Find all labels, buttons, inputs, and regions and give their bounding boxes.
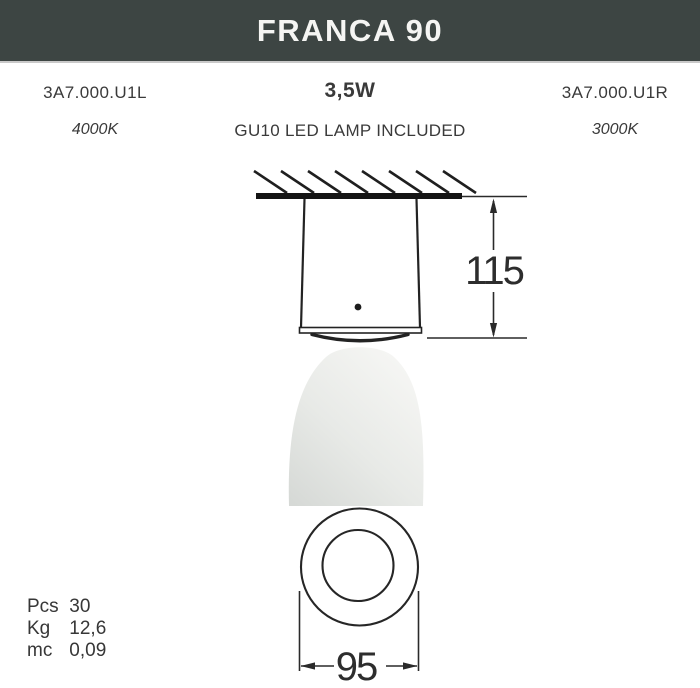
fixture-lens	[312, 335, 408, 341]
fixture-side-view	[300, 199, 422, 341]
technical-drawing	[0, 0, 700, 688]
packaging-row: Pcs 30	[27, 596, 106, 618]
arrow-right-icon	[403, 662, 418, 669]
height-dimension-label: 115	[458, 250, 530, 292]
packaging-label: Kg	[27, 618, 64, 640]
arrow-up-icon	[490, 199, 497, 214]
ceiling-hatching	[254, 171, 476, 193]
packaging-value: 12,6	[69, 618, 106, 639]
light-beam	[289, 347, 424, 506]
arrow-down-icon	[490, 323, 497, 338]
packaging-value: 0,09	[69, 640, 106, 661]
bottom-view-outer-circle	[301, 509, 418, 626]
packaging-row: Kg 12,6	[27, 618, 106, 640]
fixture-screw-dot	[355, 304, 362, 311]
packaging-label: Pcs	[27, 596, 64, 618]
packaging-info: Pcs 30 Kg 12,6 mc 0,09	[27, 596, 106, 662]
fixture-rim	[300, 328, 422, 334]
packaging-value: 30	[69, 596, 90, 617]
diameter-dimension-label: 95	[320, 646, 392, 688]
arrow-left-icon	[301, 662, 316, 669]
packaging-label: mc	[27, 640, 64, 662]
spec-sheet-page: FRANCA 90 3A7.000.U1L 3,5W 3A7.000.U1R 4…	[0, 0, 700, 688]
ceiling-line	[256, 193, 462, 199]
packaging-row: mc 0,09	[27, 640, 106, 662]
